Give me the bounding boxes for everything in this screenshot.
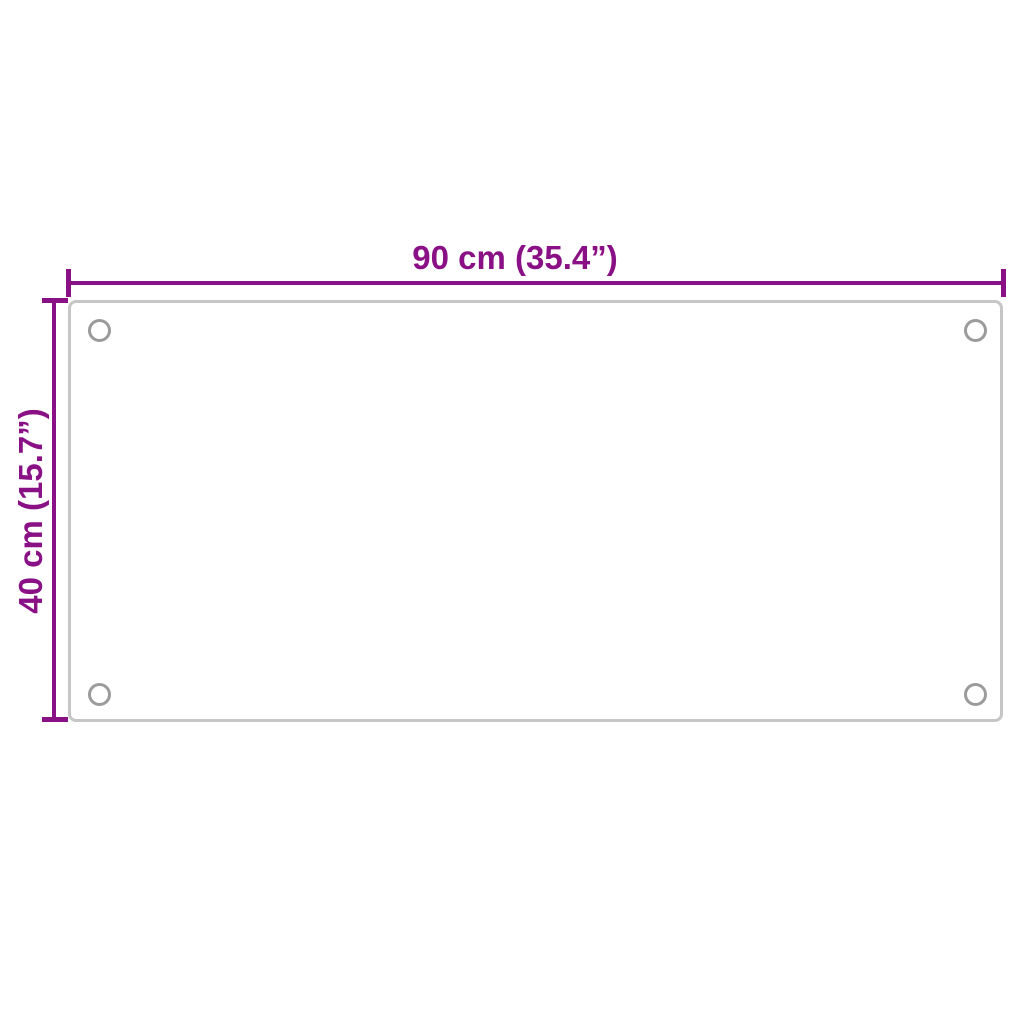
product-dimension-diagram: 90 cm (35.4”) 40 cm (15.7”): [0, 0, 1024, 1024]
width-dimension-tick-left: [66, 269, 71, 297]
mounting-hole-top-left: [88, 319, 111, 342]
height-dimension-line: [52, 300, 56, 720]
width-dimension-line: [68, 281, 1005, 285]
mounting-hole-bottom-left: [88, 683, 111, 706]
panel-outline: [68, 300, 1003, 722]
width-dimension-tick-right: [1001, 269, 1006, 297]
height-dimension-label: 40 cm (15.7”): [14, 408, 48, 613]
height-dimension-tick-bottom: [42, 717, 68, 722]
width-dimension-label: 90 cm (35.4”): [412, 241, 617, 275]
mounting-hole-top-right: [964, 319, 987, 342]
height-dimension-tick-top: [42, 298, 68, 303]
mounting-hole-bottom-right: [964, 683, 987, 706]
